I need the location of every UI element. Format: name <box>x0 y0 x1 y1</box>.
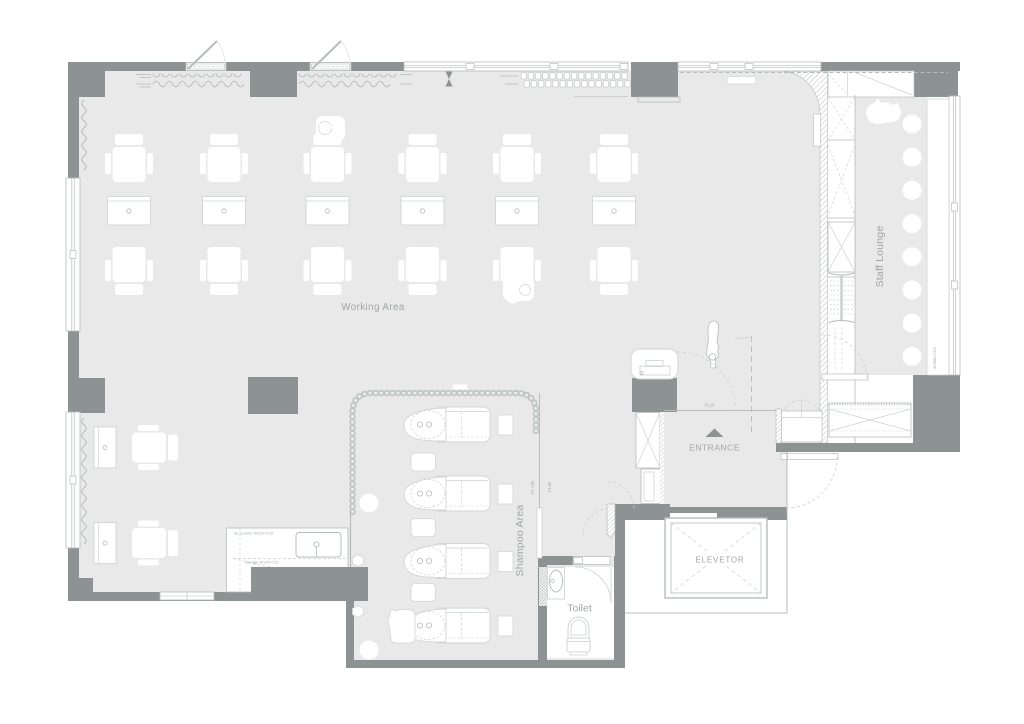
svg-text:FL+15: FL+15 <box>530 481 535 494</box>
svg-text:ELEVETOR: ELEVETOR <box>696 556 745 565</box>
svg-text:Toilet: Toilet <box>567 603 592 615</box>
svg-text:FL±0: FL±0 <box>547 481 552 492</box>
svg-text:af W880×1700: af W880×1700 <box>933 347 937 369</box>
svg-text:Working Area: Working Area <box>341 302 405 313</box>
svg-text:FL±0: FL±0 <box>705 403 715 408</box>
svg-text:Shampoo Area: Shampoo Area <box>514 505 526 577</box>
svg-text:ENTRANCE: ENTRANCE <box>689 443 740 453</box>
svg-text:Staff Lounge: Staff Lounge <box>874 226 886 288</box>
svg-text:nb.counter W220×120: nb.counter W220×120 <box>234 532 273 536</box>
svg-text:storage W130×210: storage W130×210 <box>245 561 279 565</box>
